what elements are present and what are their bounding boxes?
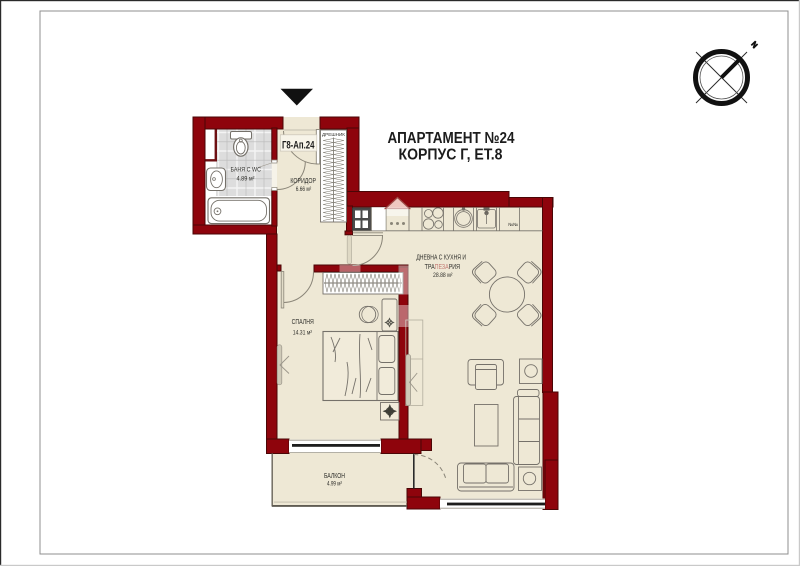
- svg-text:№№: №№: [508, 222, 518, 227]
- svg-text:КОРПУС Г, ЕТ.8: КОРПУС Г, ЕТ.8: [399, 147, 503, 164]
- svg-text:6.66 м²: 6.66 м²: [296, 186, 312, 193]
- svg-text:КОРИДОР: КОРИДОР: [290, 178, 316, 185]
- svg-text:Г8-Ап.24: Г8-Ап.24: [282, 139, 315, 151]
- svg-text:28.88 м²: 28.88 м²: [433, 272, 452, 279]
- svg-text:БАНЯ С WC: БАНЯ С WC: [230, 166, 261, 173]
- svg-text:ДНЕВНА С КУХНЯ И: ДНЕВНА С КУХНЯ И: [416, 255, 466, 262]
- svg-text:4.89 м²: 4.89 м²: [237, 175, 255, 182]
- svg-text:14.31 м²: 14.31 м²: [293, 330, 312, 337]
- svg-text:СПАЛНЯ: СПАЛНЯ: [292, 319, 314, 326]
- svg-text:ДРЕШНИК: ДРЕШНИК: [322, 132, 346, 137]
- svg-text:ТРАПЕЗАРИЯ: ТРАПЕЗАРИЯ: [425, 264, 460, 271]
- svg-text:4.99 м²: 4.99 м²: [327, 481, 342, 488]
- svg-text:БАЛКОН: БАЛКОН: [324, 473, 345, 480]
- svg-text:АПАРТАМЕНТ №24: АПАРТАМЕНТ №24: [388, 130, 515, 147]
